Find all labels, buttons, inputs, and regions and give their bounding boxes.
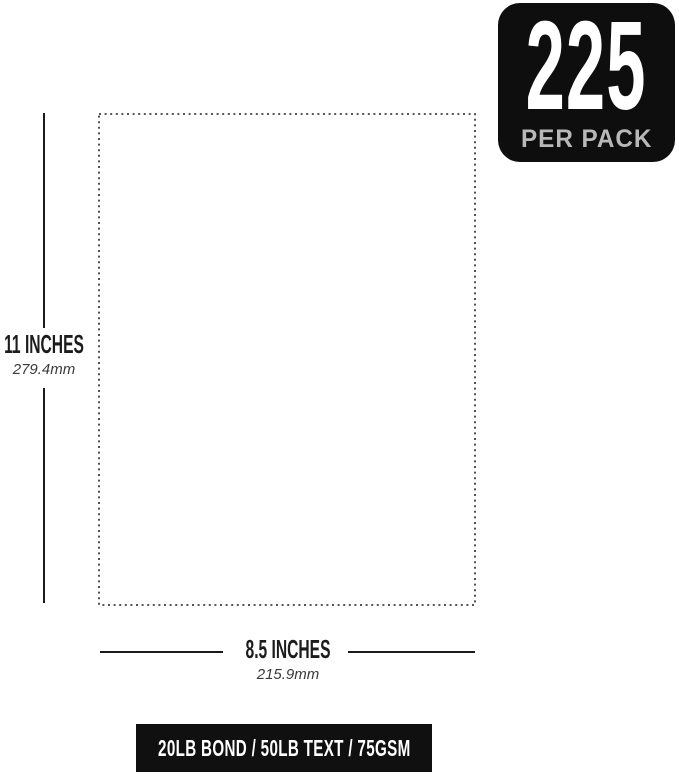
paper-sheet-outline	[98, 113, 476, 606]
paper-weight-spec-text: 20LB BOND / 50LB TEXT / 75GSM	[158, 735, 411, 762]
width-dimension-label: 8.5 INCHES 215.9mm	[217, 636, 359, 684]
pack-count-label: PER PACK	[521, 125, 652, 154]
width-measure-line-left	[100, 651, 223, 653]
height-inches-label: 11 INCHES	[0, 331, 110, 358]
product-dimension-diagram: 225 PER PACK 11 INCHES 279.4mm 8.5 INCHE…	[0, 0, 679, 779]
height-metric-label: 279.4mm	[0, 361, 110, 379]
width-measure-line-right	[348, 651, 475, 653]
width-inches-text: 8.5 INCHES	[246, 636, 331, 663]
paper-sheet-dotted-rect	[99, 114, 475, 605]
width-inches-label: 8.5 INCHES	[217, 636, 359, 663]
height-measure-line-top	[43, 113, 45, 328]
paper-weight-spec-bar: 20LB BOND / 50LB TEXT / 75GSM	[136, 724, 432, 772]
height-dimension-label: 11 INCHES 279.4mm	[0, 331, 110, 379]
height-inches-text: 11 INCHES	[4, 331, 84, 358]
height-measure-line-bottom	[43, 388, 45, 603]
width-metric-label: 215.9mm	[217, 666, 359, 684]
pack-count: 225	[526, 11, 647, 122]
per-pack-badge: 225 PER PACK	[498, 3, 675, 162]
